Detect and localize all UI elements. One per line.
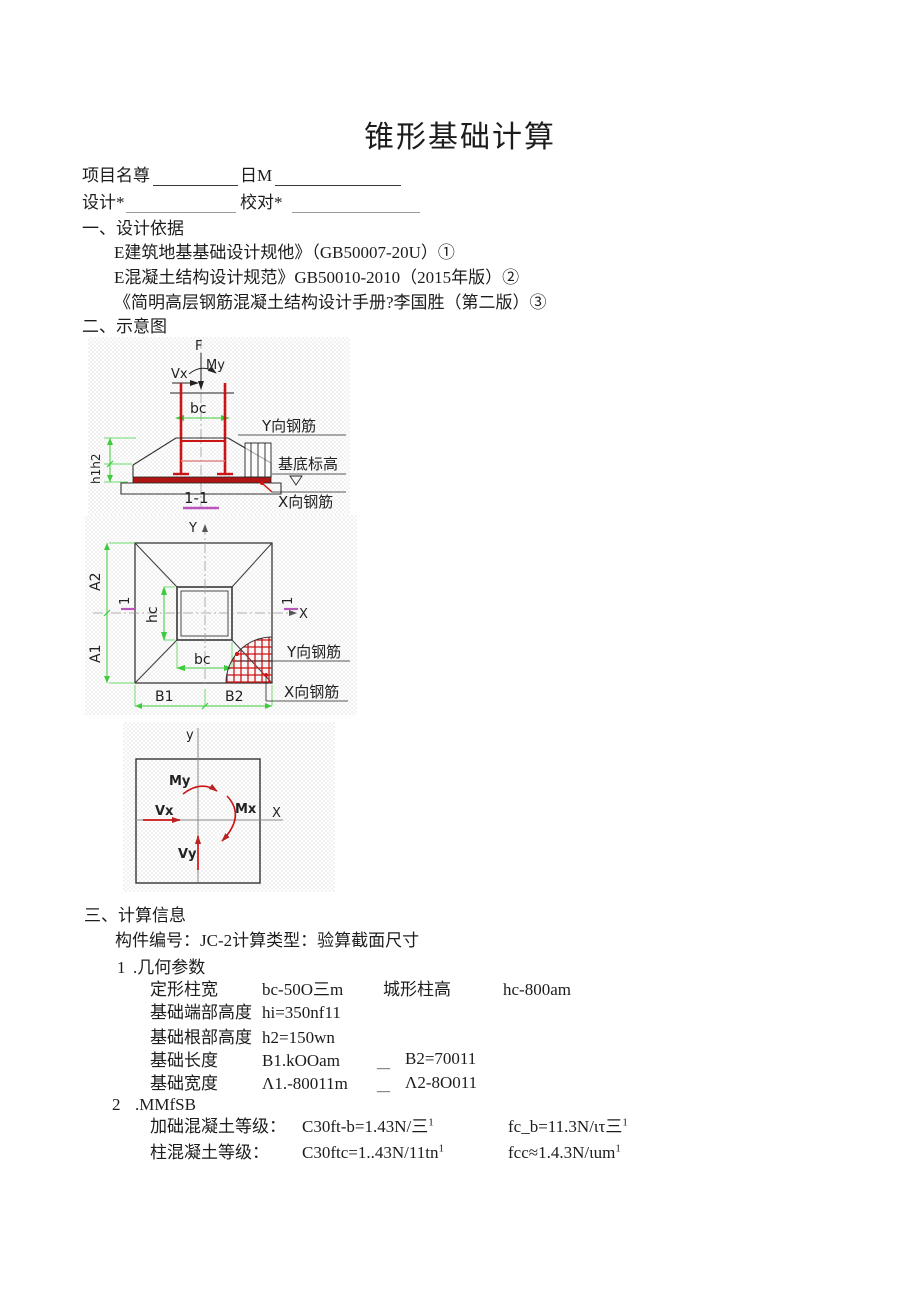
- base-level-label: 基底标高: [278, 455, 338, 473]
- value-separator-dash: —: [377, 1081, 390, 1100]
- geometry-section-title: .几何参数: [133, 958, 205, 977]
- value-separator-dash: —: [377, 1058, 390, 1077]
- reference-item: E建筑地基基础设计规他》（GB50007-20U）①: [114, 243, 455, 262]
- param-value: C30ftc=1..43N/11tn1: [302, 1143, 444, 1162]
- page-title: 锥形基础计算: [0, 112, 920, 156]
- shear-vx-label: Vx: [171, 367, 188, 382]
- checker-label: 校对*: [240, 193, 283, 212]
- moment-mx: Mx: [222, 796, 257, 841]
- moment-my-label: My: [206, 358, 225, 373]
- section-mark-1-1: 1-1: [183, 489, 219, 508]
- y-axis-label: y: [186, 728, 194, 743]
- x-rebar-callout: X向钢筋: [260, 481, 346, 511]
- bc-dimension: bc: [176, 401, 229, 418]
- hc-dim-label: hc: [145, 606, 161, 623]
- section-heading-design-basis: 一、设计依据: [82, 219, 184, 238]
- param-value: Λ1.-80011m: [262, 1074, 348, 1093]
- y-rebar-callout-plan: Y向钢筋: [235, 643, 350, 661]
- my-label: My: [169, 774, 191, 789]
- project-name-blank[interactable]: [153, 170, 238, 186]
- param-label: 定形柱宽: [150, 980, 218, 999]
- param-label: 加础混凝土等级：: [150, 1117, 286, 1136]
- y-rebar-label-plan: Y向钢筋: [286, 643, 341, 661]
- param-value: h2=150wn: [262, 1028, 335, 1047]
- param-value: bc-50O三m: [262, 980, 343, 999]
- param-value: fc_b=11.3N/ιτ三1: [508, 1117, 628, 1136]
- component-id-line: 构件编号：JC-2计算类型：验算截面尺寸: [115, 931, 419, 950]
- checker-blank[interactable]: [292, 197, 420, 213]
- param-label: 基础宽度: [150, 1074, 218, 1093]
- designer-blank[interactable]: [126, 197, 236, 213]
- param-value: B1.kOOam: [262, 1051, 340, 1070]
- b2-dim-label: B2: [225, 689, 244, 705]
- x-axis-label: X: [272, 806, 281, 821]
- b1-dim-label: B1: [155, 689, 174, 705]
- a2-dim-label: A2: [88, 573, 104, 591]
- reference-item: E混凝土结构设计规范》GB50010-2010（2015年版）②: [114, 268, 519, 287]
- x-rebar-label-plan: X向钢筋: [284, 683, 339, 701]
- mx-label: Mx: [235, 802, 257, 817]
- section-heading-calc-info: 三、计算信息: [84, 906, 186, 925]
- bc-dim-label-plan: bc: [194, 652, 211, 668]
- y-rebar-label: Y向钢筋: [261, 417, 316, 435]
- moment-my: My: [169, 774, 217, 794]
- x-rebar-callout-plan: X向钢筋: [264, 673, 348, 701]
- bottom-rebar-mat: [133, 477, 271, 483]
- bc-dimension-plan: bc: [177, 642, 232, 668]
- plan-view-diagram: Y X A2 A1 1 1 hc: [85, 515, 357, 715]
- column-rebar: [173, 383, 233, 474]
- section-mark-left: 1: [118, 597, 133, 605]
- section-1-1-label: 1-1: [184, 489, 209, 507]
- materials-section-title: .MMfSB: [135, 1095, 196, 1114]
- base-level-callout: 基底标高: [272, 455, 346, 485]
- param-label: 柱混凝土等级：: [150, 1143, 269, 1162]
- x-rebar-label: X向钢筋: [278, 493, 333, 511]
- param-value: B2=70011: [405, 1049, 476, 1068]
- geometry-section-number: 1: [117, 958, 126, 977]
- materials-section-number: 2: [112, 1095, 121, 1114]
- designer-label: 设计*: [82, 193, 125, 212]
- param-value: hc-800am: [503, 980, 571, 999]
- document-page: 锥形基础计算 项目名尊 日M 设计* 校对* 一、设计依据 E建筑地基基础设计规…: [0, 0, 920, 1301]
- param-label: 基础端部高度: [150, 1003, 252, 1022]
- param-label: 基础长度: [150, 1051, 218, 1070]
- section-mark-right: 1: [281, 597, 296, 605]
- bc-dim-label: bc: [190, 401, 207, 417]
- param-value: C30ft-b=1.43N/三1: [302, 1117, 434, 1136]
- param-value: fcc≈1.4.3N/ιum1: [508, 1143, 621, 1162]
- y-axis-label: Y: [188, 521, 197, 536]
- reference-item: 《简明高层钢筋混凝土结构设计手册?李国胜（第二版）③: [114, 293, 547, 312]
- date-label: 日M: [240, 166, 272, 185]
- vx-label: Vx: [155, 804, 174, 819]
- param-value: hi=350nf11: [262, 1003, 341, 1022]
- param-value: Λ2-8O011: [405, 1073, 477, 1092]
- b-dimension: B1 B2: [135, 685, 272, 709]
- param-label: 城形柱高: [383, 980, 451, 999]
- project-name-label: 项目名尊: [82, 166, 150, 185]
- date-blank[interactable]: [275, 170, 401, 186]
- h1h2-dim-label: h1h2: [89, 454, 103, 484]
- h-dimension: h1h2: [89, 438, 136, 484]
- shear-vx: Vx: [143, 804, 180, 820]
- force-f-label: F: [195, 339, 202, 354]
- shear-vy: Vy: [178, 836, 198, 870]
- a1-dim-label: A1: [88, 645, 104, 663]
- vy-label: Vy: [178, 847, 197, 862]
- y-rebar-callout: Y向钢筋: [238, 417, 346, 435]
- param-label: 基础根部高度: [150, 1028, 252, 1047]
- section-heading-schematic: 二、示意图: [82, 317, 167, 336]
- load-convention-diagram: y X My Mx Vx Vy: [123, 722, 335, 892]
- y-rebar-section-box: [245, 443, 271, 477]
- x-axis-label: X: [299, 607, 308, 622]
- hc-dimension: hc: [145, 587, 175, 640]
- section-view-diagram: F My Vx bc: [88, 337, 350, 515]
